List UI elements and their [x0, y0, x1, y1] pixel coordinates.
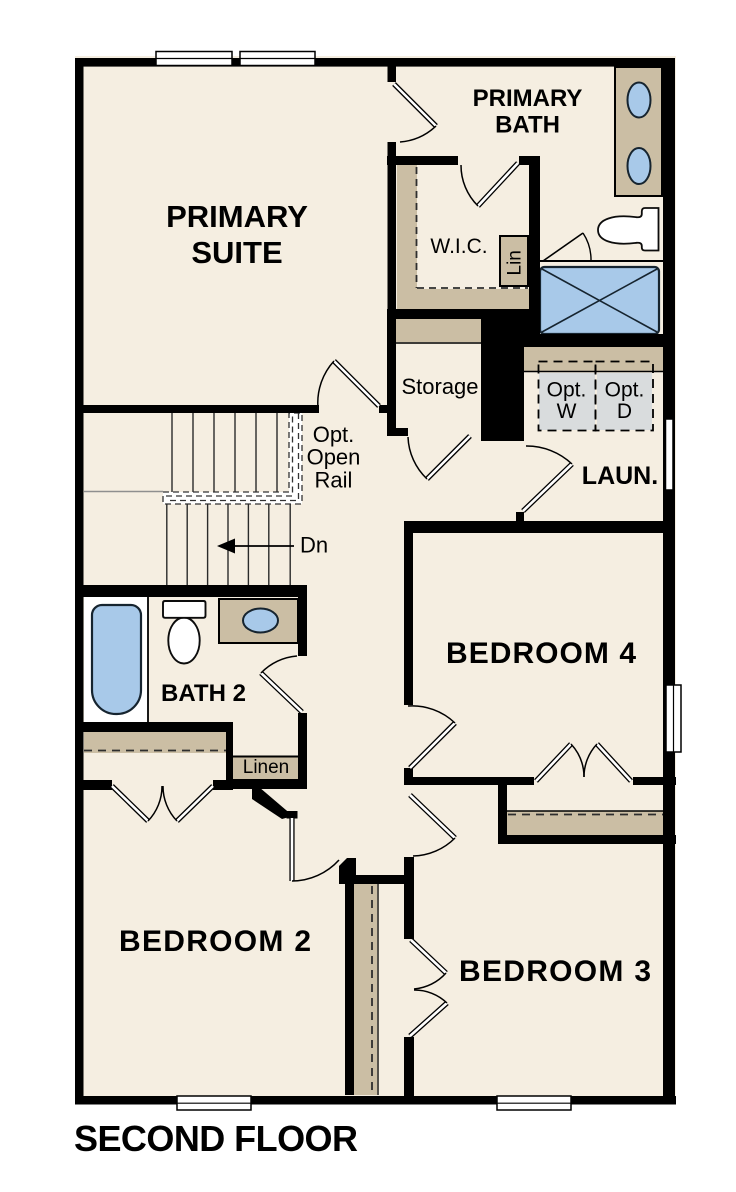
svg-text:Lin: Lin	[505, 250, 526, 275]
svg-text:LAUN.: LAUN.	[582, 462, 658, 490]
svg-text:Dn: Dn	[300, 533, 328, 558]
svg-text:Rail: Rail	[315, 467, 353, 492]
svg-text:PRIMARY: PRIMARY	[166, 199, 308, 234]
svg-text:Opt.: Opt.	[605, 379, 645, 402]
svg-text:Opt.: Opt.	[547, 379, 587, 402]
svg-text:BEDROOM 4: BEDROOM 4	[446, 637, 636, 670]
svg-text:W.I.C.: W.I.C.	[430, 235, 487, 258]
svg-text:BATH: BATH	[495, 112, 560, 139]
svg-text:PRIMARY: PRIMARY	[473, 85, 583, 112]
svg-text:Opt.: Opt.	[313, 422, 355, 447]
svg-text:Linen: Linen	[243, 757, 290, 778]
svg-text:Open: Open	[307, 445, 361, 470]
svg-text:BEDROOM 2: BEDROOM 2	[119, 925, 311, 958]
svg-text:BATH 2: BATH 2	[161, 680, 246, 707]
svg-text:W: W	[557, 400, 577, 423]
svg-text:SUITE: SUITE	[191, 235, 282, 270]
svg-text:SECOND FLOOR: SECOND FLOOR	[74, 1118, 358, 1159]
svg-text:Storage: Storage	[401, 374, 478, 399]
svg-text:BEDROOM 3: BEDROOM 3	[459, 955, 651, 988]
svg-text:D: D	[617, 400, 632, 423]
